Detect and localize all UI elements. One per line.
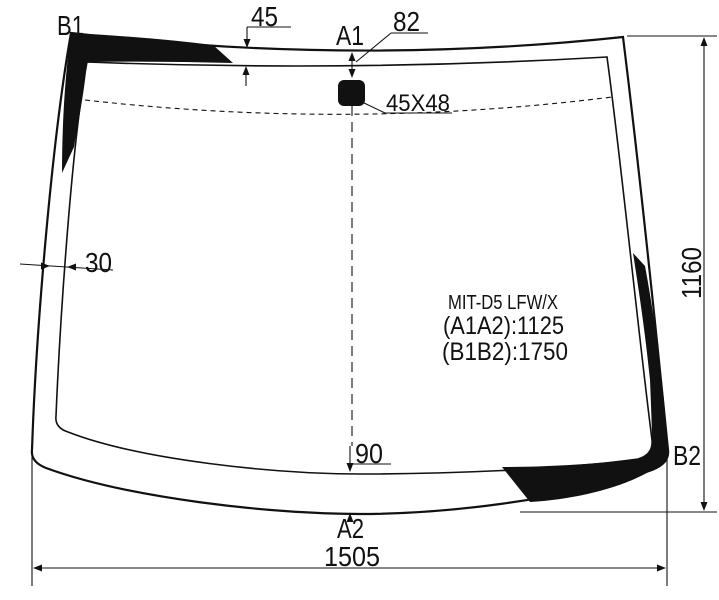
dim-mount-size-45x48: 45X48 (362, 90, 452, 117)
mount-size-label: 45X48 (386, 90, 450, 117)
dim-1505-label: 1505 (324, 541, 380, 572)
label-a2: A2 (337, 513, 364, 544)
arrowhead (657, 565, 666, 572)
arrowhead (701, 502, 708, 511)
dim-90-label: 90 (355, 438, 383, 469)
arrowhead (349, 69, 356, 78)
arrowhead (33, 565, 42, 572)
label-b2: B2 (673, 440, 701, 471)
arrowhead (347, 463, 354, 472)
arrowhead (701, 37, 708, 46)
dim-30-label: 30 (85, 247, 112, 278)
dim-top-band-45: 45 (243, 1, 292, 86)
diagram-canvas: 45 82 45X48 30 90 1160 1505 (0, 0, 719, 600)
part-dim-b1b2: (B1B2):1750 (442, 338, 568, 366)
mirror-mount-pad (338, 80, 365, 106)
arrowhead (67, 264, 76, 271)
part-dim-a1a2: (A1A2):1125 (443, 312, 564, 340)
glass-inner-outline (56, 57, 652, 474)
windshield-dimension-diagram: 45 82 45X48 30 90 1160 1505 (0, 0, 719, 600)
arrowhead (243, 66, 250, 75)
dim-45-label: 45 (251, 1, 278, 32)
part-info-block: MIT-D5 LFW/X (A1A2):1125 (B1B2):1750 (442, 292, 568, 366)
label-a1: A1 (336, 20, 364, 51)
label-b1: B1 (57, 10, 84, 41)
dim-bottom-band-90: 90 (347, 438, 392, 522)
arrowhead (349, 52, 356, 61)
part-code: MIT-D5 LFW/X (448, 292, 558, 314)
dim-1160-label: 1160 (676, 247, 707, 299)
arrowhead (41, 263, 50, 270)
frit-band-top-left (62, 33, 233, 173)
dim-82-label: 82 (393, 6, 420, 37)
